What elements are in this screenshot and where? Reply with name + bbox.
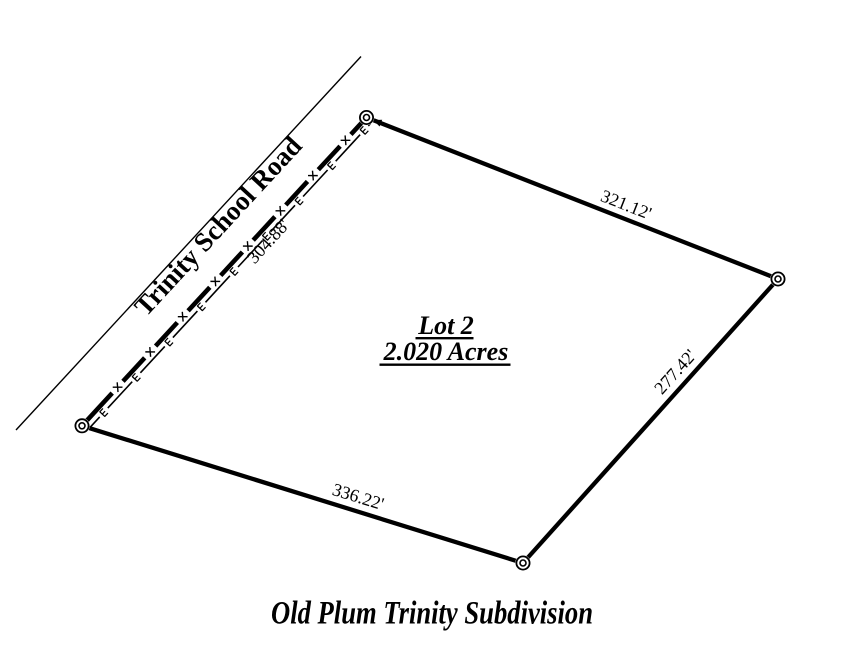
svg-text:Lot 2: Lot 2	[417, 311, 474, 340]
svg-text:Old Plum Trinity Subdivision: Old Plum Trinity Subdivision	[271, 596, 593, 632]
svg-text:2.020 Acres: 2.020 Acres	[383, 337, 509, 366]
